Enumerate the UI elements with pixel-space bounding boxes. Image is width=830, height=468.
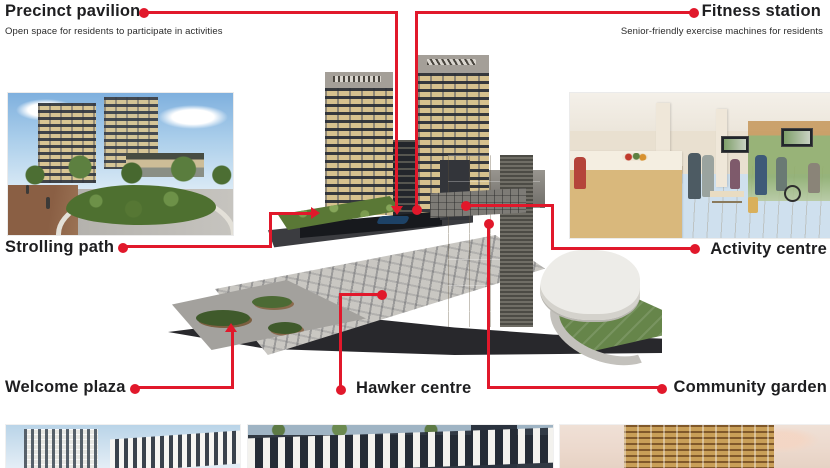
planter xyxy=(196,310,250,326)
callout-label-community-garden: Community garden xyxy=(673,378,827,397)
callout-line xyxy=(466,204,554,207)
serving-counter xyxy=(570,151,682,238)
callout-label-welcome-plaza: Welcome plaza xyxy=(5,378,126,397)
callout-label-hawker-centre: Hawker centre xyxy=(356,379,471,398)
callout-line xyxy=(487,223,490,389)
trellis-screen xyxy=(500,155,533,327)
planter xyxy=(252,296,292,308)
callout-description-fitness-station: Senior-friendly exercise machines for re… xyxy=(621,26,823,37)
activity-centre-photo xyxy=(570,93,830,238)
tower-signage xyxy=(333,76,381,82)
person xyxy=(46,197,50,209)
callout-line xyxy=(551,247,693,250)
tv-screen xyxy=(722,137,748,152)
development-thumbnail-1 xyxy=(6,425,240,468)
callout-line xyxy=(339,293,381,296)
fruit-bowl xyxy=(622,153,648,161)
callout-label-activity-centre: Activity centre xyxy=(710,240,827,259)
callout-dot-activity-centre xyxy=(690,244,700,254)
person xyxy=(808,163,820,193)
callout-dot-fitness-station xyxy=(689,8,699,18)
development-thumbnail-2 xyxy=(248,425,553,468)
callout-description-precinct-pavilion: Open space for residents to participate … xyxy=(5,26,223,37)
planter xyxy=(268,322,302,334)
callout-line xyxy=(269,212,272,248)
car xyxy=(376,216,410,224)
person xyxy=(26,185,29,194)
callout-dot-precinct-pavilion xyxy=(139,8,149,18)
callout-label-precinct-pavilion: Precinct pavilion xyxy=(5,2,140,21)
callout-dot-fitness-target xyxy=(412,205,422,215)
callout-arrow-precinct-pavilion xyxy=(391,206,403,215)
strolling-path-photo xyxy=(8,93,233,235)
callout-dot-hawker-target xyxy=(377,290,387,300)
callout-line xyxy=(339,294,342,388)
table xyxy=(710,191,744,197)
wheelchair xyxy=(784,185,801,202)
callout-line xyxy=(135,386,234,389)
model-tower-left xyxy=(325,72,393,215)
callout-line xyxy=(144,11,398,14)
chair xyxy=(748,197,758,213)
cloud xyxy=(158,105,228,129)
callout-line xyxy=(417,11,691,14)
callout-arrow-strolling-path xyxy=(311,207,320,219)
model-activity-block xyxy=(448,155,540,327)
person xyxy=(755,155,767,195)
callout-dot-welcome-plaza xyxy=(130,384,140,394)
person xyxy=(574,157,586,189)
callout-label-fitness-station: Fitness station xyxy=(702,2,821,21)
person xyxy=(688,153,701,199)
callout-line xyxy=(395,11,398,207)
callout-label-strolling-path: Strolling path xyxy=(5,238,114,257)
callout-line xyxy=(231,332,234,389)
callout-line xyxy=(551,204,554,250)
tower-signage xyxy=(427,59,477,65)
person xyxy=(776,157,787,191)
person xyxy=(730,159,740,189)
development-thumbnail-3 xyxy=(560,425,830,468)
callout-dot-strolling-path xyxy=(118,243,128,253)
infographic-canvas: Precinct pavilion Open space for residen… xyxy=(0,0,830,468)
callout-dot-community-garden xyxy=(657,384,667,394)
planting-bed xyxy=(66,185,216,225)
model-curved-pavilion xyxy=(540,250,640,320)
tv-screen xyxy=(782,129,812,146)
callout-line xyxy=(490,386,662,389)
callout-line xyxy=(415,11,418,207)
callout-arrow-welcome-plaza xyxy=(225,323,237,332)
callout-dot-community-target xyxy=(484,219,494,229)
callout-line xyxy=(269,212,312,215)
callout-line xyxy=(123,245,272,248)
callout-dot-hawker-centre xyxy=(336,385,346,395)
callout-dot-activity-target xyxy=(461,201,471,211)
